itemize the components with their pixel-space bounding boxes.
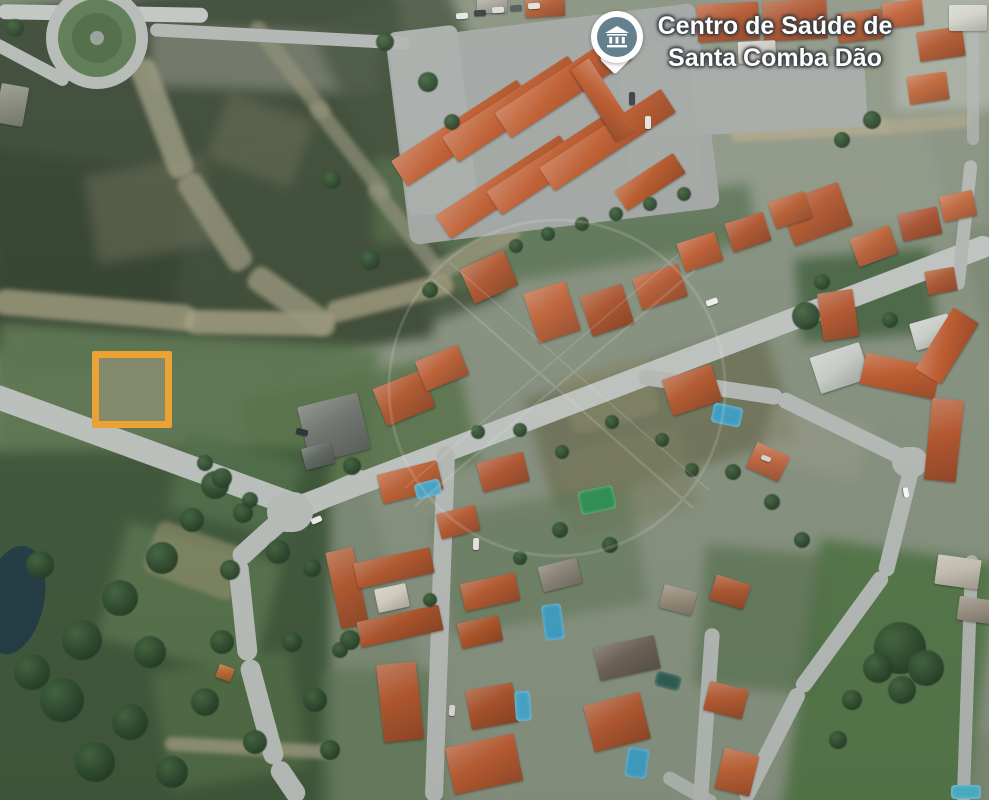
building-roof xyxy=(916,26,966,62)
swimming-pool xyxy=(514,690,532,721)
tree xyxy=(792,302,820,330)
car xyxy=(645,116,651,129)
tree xyxy=(794,532,810,548)
building-roof xyxy=(956,596,989,624)
tree xyxy=(320,740,340,760)
tree xyxy=(242,492,258,508)
tree xyxy=(26,551,54,579)
tree xyxy=(602,537,618,553)
tree xyxy=(180,508,204,532)
tree xyxy=(212,468,232,488)
tree xyxy=(609,207,623,221)
tree xyxy=(509,239,523,253)
tree xyxy=(643,197,657,211)
tree xyxy=(725,464,741,480)
roundabout-circle xyxy=(90,31,104,45)
tree xyxy=(863,653,893,683)
tree xyxy=(882,312,898,328)
tree xyxy=(423,593,437,607)
tree xyxy=(764,494,780,510)
tree xyxy=(605,415,619,429)
tree xyxy=(552,522,568,538)
tree xyxy=(197,455,213,471)
tree xyxy=(418,72,438,92)
tree xyxy=(677,187,691,201)
tree xyxy=(40,678,84,722)
tree xyxy=(243,730,267,754)
tree xyxy=(555,445,569,459)
tree xyxy=(6,19,24,37)
tree xyxy=(422,282,438,298)
building-roof xyxy=(934,554,982,590)
car xyxy=(510,5,522,12)
tree xyxy=(303,688,327,712)
institution-building-icon xyxy=(605,26,629,48)
tree xyxy=(685,463,699,477)
swimming-pool xyxy=(951,785,981,799)
tree xyxy=(220,560,240,580)
road xyxy=(967,15,979,145)
tree xyxy=(323,171,341,189)
car xyxy=(492,7,504,14)
car xyxy=(629,92,635,105)
tree xyxy=(444,114,460,130)
building-roof xyxy=(465,682,519,730)
car xyxy=(473,538,479,550)
tree xyxy=(282,632,302,652)
tree xyxy=(102,580,138,616)
poi-label-line1: Centro de Saúde de xyxy=(650,10,900,42)
tree xyxy=(156,756,188,788)
car xyxy=(456,13,468,20)
tree xyxy=(303,559,321,577)
building-roof xyxy=(949,5,987,31)
poi-pin[interactable] xyxy=(591,11,643,63)
car xyxy=(474,10,486,17)
tree xyxy=(134,636,166,668)
tree xyxy=(376,33,394,51)
tree xyxy=(146,542,178,574)
tree xyxy=(829,731,847,749)
car xyxy=(528,3,540,10)
tree xyxy=(266,540,290,564)
tree xyxy=(332,642,348,658)
building-roof xyxy=(817,289,859,342)
tree xyxy=(513,423,527,437)
tree xyxy=(863,111,881,129)
tree xyxy=(575,217,589,231)
tree xyxy=(471,425,485,439)
tree xyxy=(834,132,850,148)
tree xyxy=(343,457,361,475)
tree xyxy=(210,630,234,654)
poi-label[interactable]: Centro de Saúde de Santa Comba Dão xyxy=(650,10,900,74)
tree xyxy=(360,250,380,270)
building-roof xyxy=(376,661,424,743)
building-roof xyxy=(924,267,958,296)
pin-badge xyxy=(597,17,637,57)
tree xyxy=(14,654,50,690)
tree xyxy=(541,227,555,241)
satellite-map[interactable]: Centro de Saúde de Santa Comba Dão xyxy=(0,0,989,800)
swimming-pool xyxy=(624,747,650,780)
tree xyxy=(842,690,862,710)
poi-label-line2: Santa Comba Dão xyxy=(650,42,900,74)
building-roof xyxy=(906,71,950,104)
tree xyxy=(75,742,115,782)
tree xyxy=(888,676,916,704)
plot-highlight-rectangle[interactable] xyxy=(92,351,172,428)
tree xyxy=(655,433,669,447)
tree xyxy=(191,688,219,716)
tree xyxy=(513,551,527,565)
car xyxy=(449,704,456,715)
tree xyxy=(112,704,148,740)
tree xyxy=(908,650,944,686)
tree xyxy=(62,620,102,660)
tree xyxy=(814,274,830,290)
